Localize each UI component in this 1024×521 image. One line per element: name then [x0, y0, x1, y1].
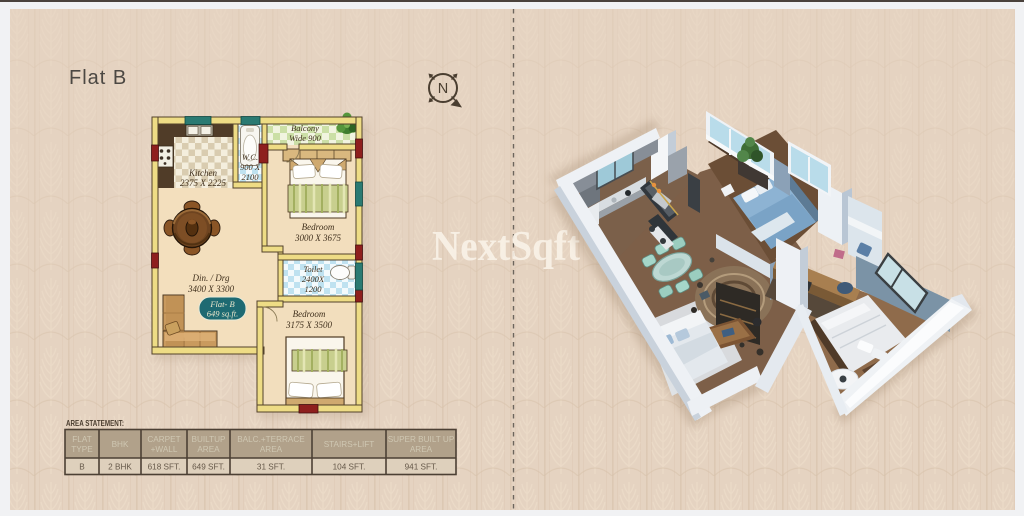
svg-text:3175 X 3500: 3175 X 3500 [285, 320, 332, 330]
svg-text:104 SFT.: 104 SFT. [333, 463, 366, 472]
svg-text:2 BHK: 2 BHK [108, 463, 132, 472]
svg-text:618 SFT.: 618 SFT. [148, 463, 181, 472]
svg-text:BALC.+TERRACE: BALC.+TERRACE [237, 435, 305, 444]
svg-text:Toilet: Toilet [303, 264, 323, 274]
svg-text:BUILTUP: BUILTUP [192, 435, 227, 444]
svg-text:649 sq.ft.: 649 sq.ft. [207, 309, 238, 319]
svg-text:AREA: AREA [197, 445, 220, 454]
svg-text:2400X: 2400X [302, 274, 325, 284]
svg-text:+WALL: +WALL [151, 445, 178, 454]
svg-text:Bedroom: Bedroom [293, 309, 326, 319]
svg-text:STAIRS+LIFT: STAIRS+LIFT [324, 440, 375, 449]
svg-text:2100: 2100 [242, 172, 260, 182]
svg-text:3000 X 3675: 3000 X 3675 [294, 233, 341, 243]
svg-text:BHK: BHK [112, 440, 129, 449]
svg-text:CARPET: CARPET [147, 435, 180, 444]
svg-text:FLAT: FLAT [72, 435, 91, 444]
svg-text:AREA STATEMENT:: AREA STATEMENT: [66, 419, 124, 428]
svg-text:Flat- B: Flat- B [209, 299, 234, 309]
svg-text:Wide 900: Wide 900 [289, 133, 322, 143]
svg-text:3400 X 3300: 3400 X 3300 [187, 284, 234, 294]
svg-text:2375 X 2225: 2375 X 2225 [180, 178, 226, 188]
svg-text:W.C.: W.C. [242, 152, 258, 162]
svg-text:31 SFT.: 31 SFT. [257, 463, 285, 472]
svg-text:N: N [438, 81, 448, 97]
svg-text:649 SFT.: 649 SFT. [192, 463, 225, 472]
svg-text:TYPE: TYPE [71, 445, 93, 454]
svg-text:NextSqft: NextSqft [432, 224, 580, 270]
svg-text:941 SFT.: 941 SFT. [405, 463, 438, 472]
svg-text:Bedroom: Bedroom [302, 222, 335, 232]
svg-text:Flat B: Flat B [69, 67, 127, 89]
svg-text:SUPER BUILT UP: SUPER BUILT UP [388, 435, 455, 444]
svg-text:Kitchen: Kitchen [188, 168, 217, 178]
svg-text:B: B [79, 463, 85, 472]
svg-text:1200: 1200 [305, 284, 323, 294]
svg-text:AREA: AREA [410, 445, 433, 454]
svg-text:Din. / Drg: Din. / Drg [192, 273, 230, 283]
svg-text:AREA: AREA [260, 445, 283, 454]
